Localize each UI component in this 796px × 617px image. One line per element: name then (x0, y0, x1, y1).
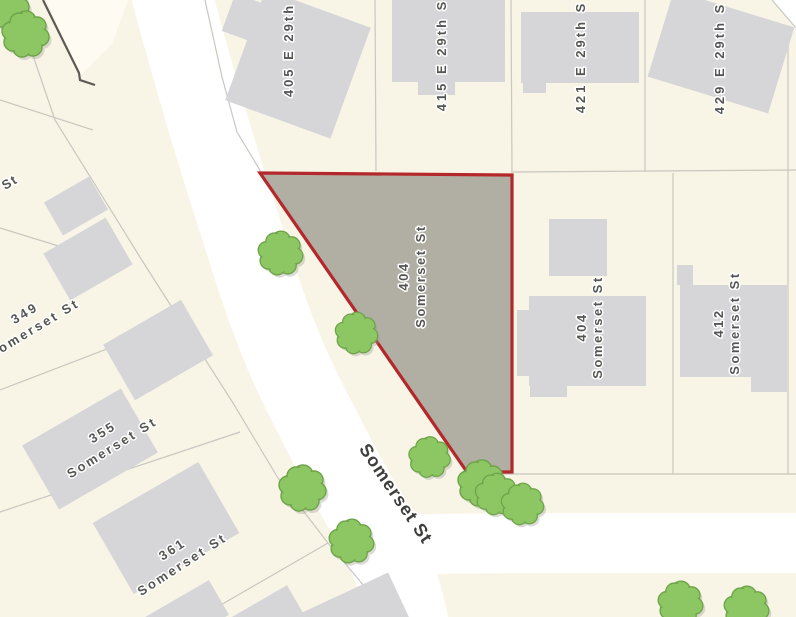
parcel-label-415-e-29th: 415 E 29th S (434, 0, 449, 111)
road-east-branch (398, 543, 796, 545)
building-404e-wing (517, 310, 529, 376)
parcel-label-421-e-29th: 421 E 29th S (573, 1, 588, 114)
parcel-map-canvas: 405 E 29th 415 E 29th S 421 E 29th S 429… (0, 0, 796, 617)
building-421-step (523, 83, 546, 93)
parcel-street: Somerset St (727, 271, 742, 374)
building-412-step (751, 377, 787, 392)
parcel-street: Somerset St (590, 275, 605, 378)
parcel-label-429-e-29th: 429 E 29th S (712, 2, 727, 115)
building-404e-step (530, 386, 567, 397)
building-412-bump (677, 265, 693, 285)
parcel-map: 405 E 29th 415 E 29th S 421 E 29th S 429… (0, 0, 796, 617)
parcel-number: 412 (711, 308, 726, 337)
selected-parcel-street: Somerset St (413, 224, 428, 327)
building-404e-garage (549, 219, 607, 276)
parcel-label-405-e-29th: 405 E 29th (281, 3, 296, 97)
parcel-number: 404 (574, 312, 589, 341)
selected-parcel-number: 404 (396, 261, 411, 290)
